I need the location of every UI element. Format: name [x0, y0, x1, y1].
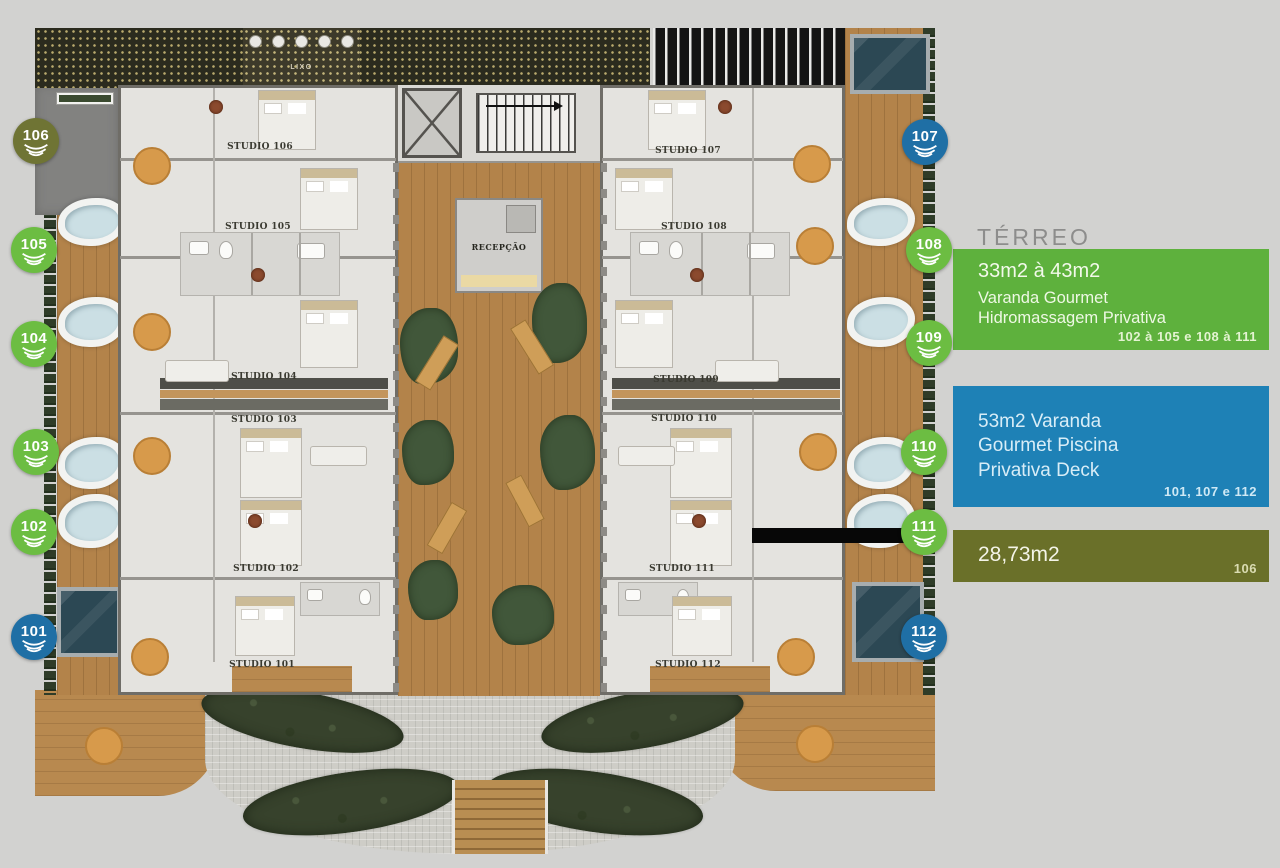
bathroom-band-left	[180, 232, 340, 296]
bed	[615, 168, 673, 230]
bed	[670, 500, 732, 566]
service-area: LIXO	[243, 28, 360, 88]
legend-box-blue: 53m2 Varanda Gourmet Piscina Privativa D…	[953, 386, 1269, 507]
unit-numbers: 106	[1234, 561, 1257, 576]
bed	[300, 168, 358, 230]
balcony-table	[133, 437, 171, 475]
entrance-stairs	[452, 780, 548, 854]
balcony-table	[133, 313, 171, 351]
pool-101	[57, 587, 121, 657]
wall	[602, 577, 843, 580]
unit-feature: Hidromassagem Privativa	[978, 308, 1255, 328]
pendant-lamp	[251, 268, 265, 282]
sofa	[165, 360, 229, 382]
pendant-lamp	[718, 100, 732, 114]
unit-numbers: 101, 107 e 112	[1164, 484, 1257, 499]
courtyard-path	[398, 662, 600, 696]
studio-label-110: STUDIO 110	[651, 414, 717, 424]
kitchen-shelf	[612, 390, 840, 398]
unit-badge-103: 103	[13, 429, 59, 475]
pendant-lamp	[692, 514, 706, 528]
colonnade-left	[393, 163, 399, 695]
unit-feature: 53m2 Varanda	[978, 410, 1255, 434]
unit-badge-107: 107	[902, 119, 948, 165]
pool-107	[850, 34, 930, 94]
bed	[672, 596, 732, 656]
studio-label-108: STUDIO 108	[661, 222, 727, 232]
studio-label-102: STUDIO 102	[233, 564, 299, 574]
kitchen-shelf	[160, 390, 388, 398]
pergola-slats	[653, 28, 845, 88]
wall	[120, 577, 396, 580]
studio-label-101: STUDIO 101	[229, 660, 295, 670]
staircase	[476, 93, 576, 153]
sofa	[618, 446, 675, 466]
unit-size-range: 33m2 à 43m2	[978, 260, 1255, 283]
elevator	[402, 88, 462, 158]
roof-lights	[243, 35, 360, 48]
floorplan-render: LIXO	[0, 0, 940, 868]
unit-feature: Gourmet Piscina	[978, 434, 1255, 458]
bathroom-101	[300, 582, 380, 616]
balcony-table	[796, 227, 834, 265]
balcony-table	[799, 433, 837, 471]
studio-label-105: STUDIO 105	[225, 222, 291, 232]
unit-badge-101: 101	[11, 614, 57, 660]
planter	[540, 415, 595, 490]
unit-badge-106: 106	[13, 118, 59, 164]
floorplan-page: LIXO	[0, 0, 1280, 868]
bed	[240, 428, 302, 498]
bed	[615, 300, 673, 368]
balcony-table	[777, 638, 815, 676]
sofa	[310, 446, 367, 466]
planter	[492, 585, 554, 645]
unit-numbers: 102 à 105 e 108 à 111	[1118, 329, 1257, 344]
unit-badge-112: 112	[901, 614, 947, 660]
balcony-table	[793, 145, 831, 183]
kitchen-counter	[160, 399, 388, 410]
balcony-table	[133, 147, 171, 185]
bed	[648, 90, 706, 150]
reception-label: RECEPÇÃO	[457, 242, 541, 252]
unit-badge-109: 109	[906, 320, 952, 366]
pendant-lamp	[690, 268, 704, 282]
studio-label-112: STUDIO 112	[655, 660, 721, 670]
bed	[235, 596, 295, 656]
legend-box-olive: 28,73m2 106	[953, 530, 1269, 582]
patio-table	[85, 727, 123, 765]
studio-label-104: STUDIO 104	[231, 372, 297, 382]
patio-table	[796, 725, 834, 763]
unit-badge-111: 111	[901, 509, 947, 555]
studio-label-103: STUDIO 103	[231, 415, 297, 425]
balcony-table	[131, 638, 169, 676]
unit-badge-102: 102	[11, 509, 57, 555]
floor-title: TÉRREO	[977, 224, 1091, 251]
kitchen-counter	[612, 399, 840, 410]
sofa	[715, 360, 779, 382]
unit-badge-105: 105	[11, 227, 57, 273]
colonnade-right	[601, 163, 607, 695]
roof-overhang-bar	[752, 528, 904, 543]
bathroom-band-right	[630, 232, 790, 296]
bed	[258, 90, 316, 150]
deck-bottom-left	[35, 690, 218, 796]
studio-label-111: STUDIO 111	[649, 564, 715, 574]
planter	[402, 420, 454, 485]
trash-room-label: LIXO	[243, 64, 360, 71]
terrace-planter	[56, 92, 114, 105]
unit-feature: Privativa Deck	[978, 459, 1255, 483]
reception: RECEPÇÃO	[455, 198, 543, 293]
bed	[240, 500, 302, 566]
wall	[602, 412, 843, 415]
studio-label-106: STUDIO 106	[227, 142, 293, 152]
unit-feature: Varanda Gourmet	[978, 288, 1255, 308]
bed	[670, 428, 732, 498]
unit-size: 28,73m2	[978, 543, 1060, 567]
planter	[408, 560, 458, 620]
studio-label-107: STUDIO 107	[655, 146, 721, 156]
pendant-lamp	[209, 100, 223, 114]
unit-badge-104: 104	[11, 321, 57, 367]
bed	[300, 300, 358, 368]
unit-badge-110: 110	[901, 429, 947, 475]
pendant-lamp	[248, 514, 262, 528]
unit-badge-108: 108	[906, 227, 952, 273]
studio-label-109: STUDIO 109	[653, 375, 719, 385]
legend-box-green: 33m2 à 43m2 Varanda Gourmet Hidromassage…	[953, 249, 1269, 350]
